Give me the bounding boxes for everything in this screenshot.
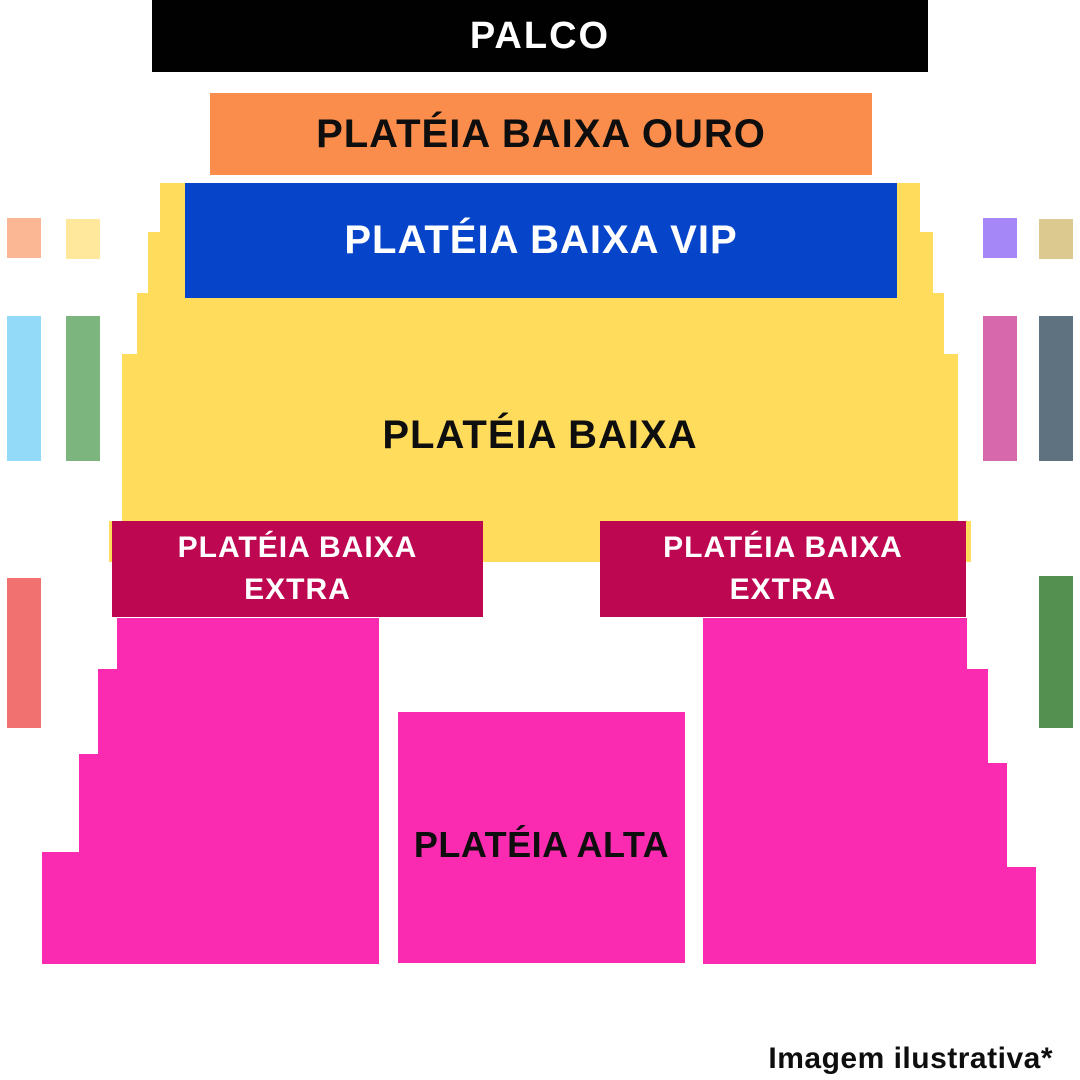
section-plateia-alta-center[interactable]: PLATÉIA ALTA: [398, 712, 685, 963]
box-upper-right-inner[interactable]: [983, 218, 1017, 258]
stage-label: PALCO: [470, 15, 610, 58]
section-plateia-alta-label: PLATÉIA ALTA: [414, 824, 669, 866]
box-middle-left-inner[interactable]: [66, 316, 100, 461]
box-middle-left-outer[interactable]: [7, 316, 41, 461]
section-plateia-alta-left-wing[interactable]: [42, 618, 379, 964]
extra-left-label-line1: PLATÉIA BAIXA: [178, 527, 418, 569]
box-lower-left-outer[interactable]: [7, 578, 41, 728]
section-plateia-baixa-extra-right[interactable]: PLATÉIA BAIXA EXTRA: [600, 521, 966, 617]
box-upper-right-outer[interactable]: [1039, 219, 1073, 259]
stage-palco: PALCO: [152, 0, 928, 72]
extra-right-label-line2: EXTRA: [730, 569, 837, 611]
extra-right-label-line1: PLATÉIA BAIXA: [663, 527, 903, 569]
section-plateia-baixa-vip-label: PLATÉIA BAIXA VIP: [344, 218, 737, 263]
box-upper-left-outer[interactable]: [7, 218, 41, 258]
section-plateia-baixa-vip[interactable]: PLATÉIA BAIXA VIP: [185, 183, 897, 298]
section-plateia-baixa-ouro-label: PLATÉIA BAIXA OURO: [316, 112, 766, 157]
extra-left-label-line2: EXTRA: [244, 569, 351, 611]
footnote-imagem-ilustrativa: Imagem ilustrativa*: [768, 1038, 1053, 1080]
section-plateia-baixa-label: PLATÉIA BAIXA: [0, 405, 1080, 465]
box-middle-right-inner[interactable]: [983, 316, 1017, 461]
box-middle-right-outer[interactable]: [1039, 316, 1073, 461]
section-plateia-baixa-extra-left[interactable]: PLATÉIA BAIXA EXTRA: [112, 521, 483, 617]
box-upper-left-inner[interactable]: [66, 219, 100, 259]
seating-map: PALCO PLATÉIA BAIXA OURO PLATÉIA BAIXA P…: [0, 0, 1080, 1080]
section-plateia-baixa-ouro[interactable]: PLATÉIA BAIXA OURO: [210, 93, 872, 175]
section-plateia-alta-right-wing[interactable]: [703, 618, 1036, 964]
box-lower-right-outer[interactable]: [1039, 576, 1073, 728]
